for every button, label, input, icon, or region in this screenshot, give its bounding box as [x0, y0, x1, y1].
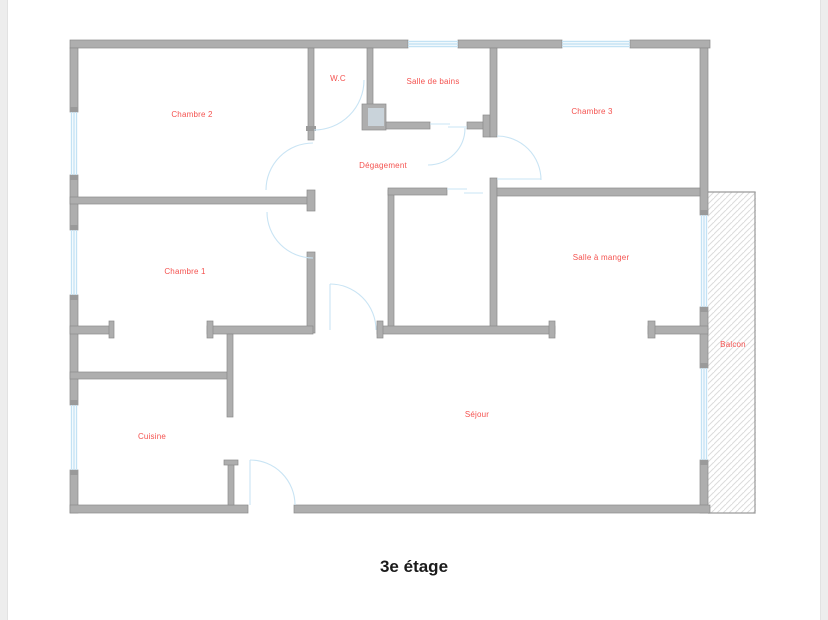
room-label-sejour: Séjour [465, 411, 489, 419]
floor-plan-drawing [0, 0, 828, 620]
door-arc-chambre-1 [267, 212, 313, 258]
room-label-chambre-1: Chambre 1 [164, 268, 205, 276]
wall-segment [458, 40, 562, 48]
wall-segment [388, 188, 447, 195]
wall-segment [207, 326, 313, 334]
floor-plan-page: Chambre 2 W.C Salle de bains Chambre 3 D… [0, 0, 828, 620]
wall-segment [70, 197, 312, 204]
wall-segment [307, 252, 315, 333]
window-left-chambre-1 [70, 225, 78, 300]
wall-segment [70, 40, 408, 48]
wall-segment [294, 505, 710, 513]
wall-segment [70, 48, 78, 112]
wall-segment [630, 40, 710, 48]
balcony-area [708, 192, 756, 513]
door-arc-wc [314, 80, 364, 130]
wall-segment [228, 462, 234, 505]
wall-segment [70, 372, 230, 379]
wall-end-cap [224, 460, 238, 465]
room-label-chambre-2: Chambre 2 [171, 111, 212, 119]
wall-segment [377, 326, 555, 334]
wall-end-cap [377, 321, 383, 338]
wall-segment [490, 178, 497, 333]
room-label-degagement: Dégagement [359, 162, 407, 170]
wall-segment [700, 307, 708, 368]
door-arc-chambre-3 [497, 136, 541, 180]
window-left-cuisine [70, 400, 78, 475]
door-swings [250, 80, 541, 505]
wall-end-cap [648, 321, 655, 338]
window-right-salle-a-manger [700, 210, 708, 312]
room-label-salle-de-bains: Salle de bains [406, 78, 459, 86]
wall-segment [497, 188, 700, 196]
window-right-sejour [700, 363, 708, 465]
wall-end-cap [483, 115, 490, 137]
wall-segment [700, 48, 708, 215]
floor-title: 3e étage [380, 557, 448, 577]
wall-end-cap [207, 321, 213, 338]
room-label-salle-a-manger: Salle à manger [573, 254, 630, 262]
wall-end-cap [307, 190, 315, 211]
wall-segment [386, 122, 430, 129]
door-arc-entrance [250, 460, 295, 505]
wall-segment [227, 334, 233, 417]
wall-segment [648, 326, 708, 334]
balcony-hatch [708, 192, 756, 513]
wall-end-cap [109, 321, 114, 338]
room-label-chambre-3: Chambre 3 [571, 108, 612, 116]
wall-segment [70, 326, 113, 334]
room-label-wc: W.C [330, 75, 346, 83]
door-arc-sejour [330, 284, 376, 330]
window-top-bathroom [408, 42, 458, 47]
wall-end-cap [549, 321, 555, 338]
wall-segment [367, 48, 373, 105]
wall-segment [70, 295, 78, 405]
room-label-cuisine: Cuisine [138, 433, 166, 441]
window-left-chambre-2 [70, 107, 78, 180]
door-arc-salle-de-bains [428, 128, 465, 165]
wall-segment [490, 48, 497, 137]
window-top-chambre-3 [562, 42, 630, 47]
wall-segment [388, 190, 394, 333]
wall-segment [70, 505, 248, 513]
bathroom-step-inner [368, 108, 384, 126]
door-arc-chambre-2 [266, 143, 313, 190]
room-label-balcon: Balcon [720, 341, 746, 349]
